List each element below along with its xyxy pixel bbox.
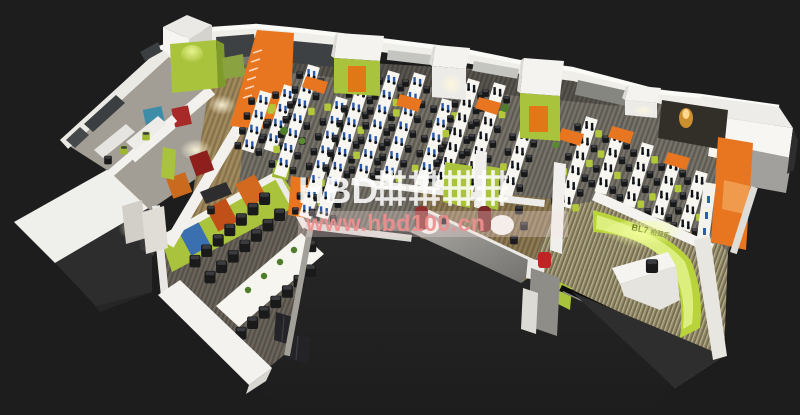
svg-text:www.hbd100.cn: www.hbd100.cn — [305, 210, 485, 236]
svg-text:HBD: HBD — [298, 170, 378, 211]
